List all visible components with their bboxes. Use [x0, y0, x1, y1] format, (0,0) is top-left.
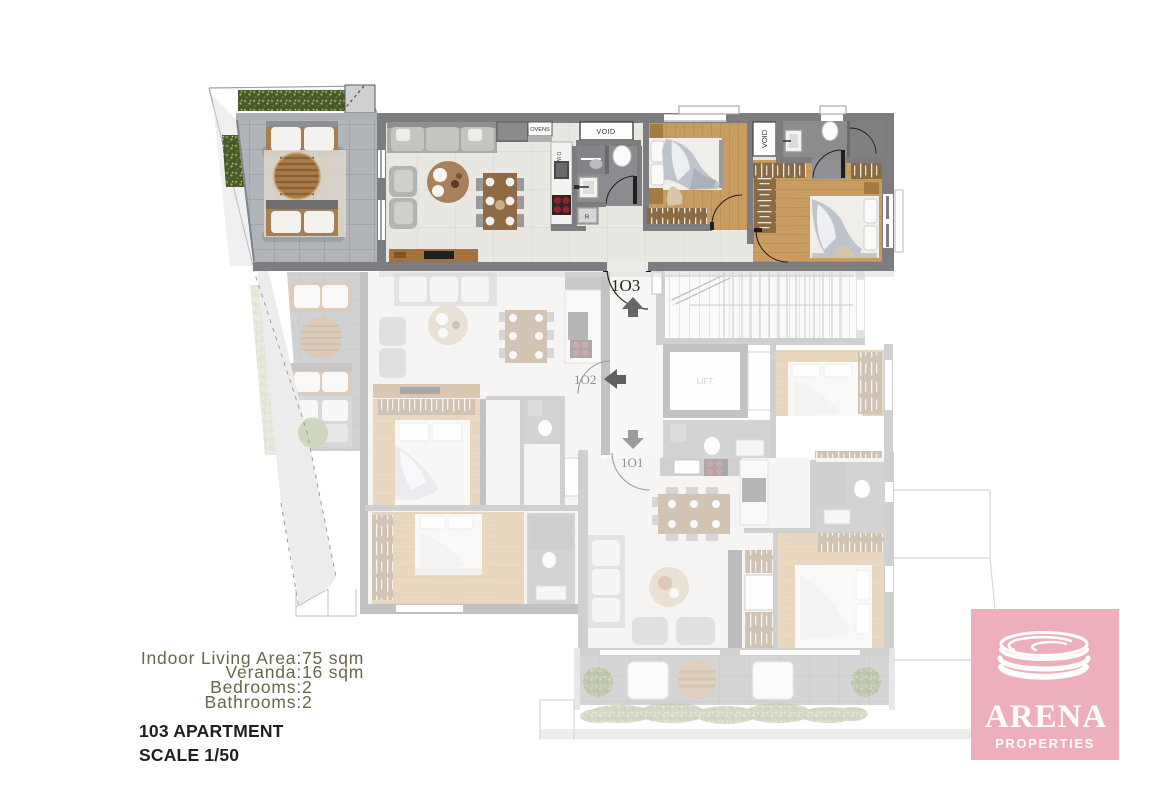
- svg-text:Bathrooms:: Bathrooms:: [205, 692, 302, 712]
- svg-text:2: 2: [302, 692, 313, 712]
- svg-text:VOID: VOID: [596, 129, 615, 136]
- svg-text:R: R: [585, 215, 590, 221]
- svg-text:OVENS: OVENS: [530, 127, 550, 133]
- svg-text:D.W: D.W: [555, 152, 561, 162]
- svg-text:VOID: VOID: [760, 129, 769, 148]
- svg-text:PROPERTIES: PROPERTIES: [995, 736, 1095, 751]
- svg-text:SCALE 1/50: SCALE 1/50: [139, 745, 239, 765]
- svg-text:ARENA: ARENA: [985, 699, 1107, 735]
- svg-text:103 APARTMENT: 103 APARTMENT: [139, 721, 284, 741]
- svg-text:1O1: 1O1: [621, 455, 643, 470]
